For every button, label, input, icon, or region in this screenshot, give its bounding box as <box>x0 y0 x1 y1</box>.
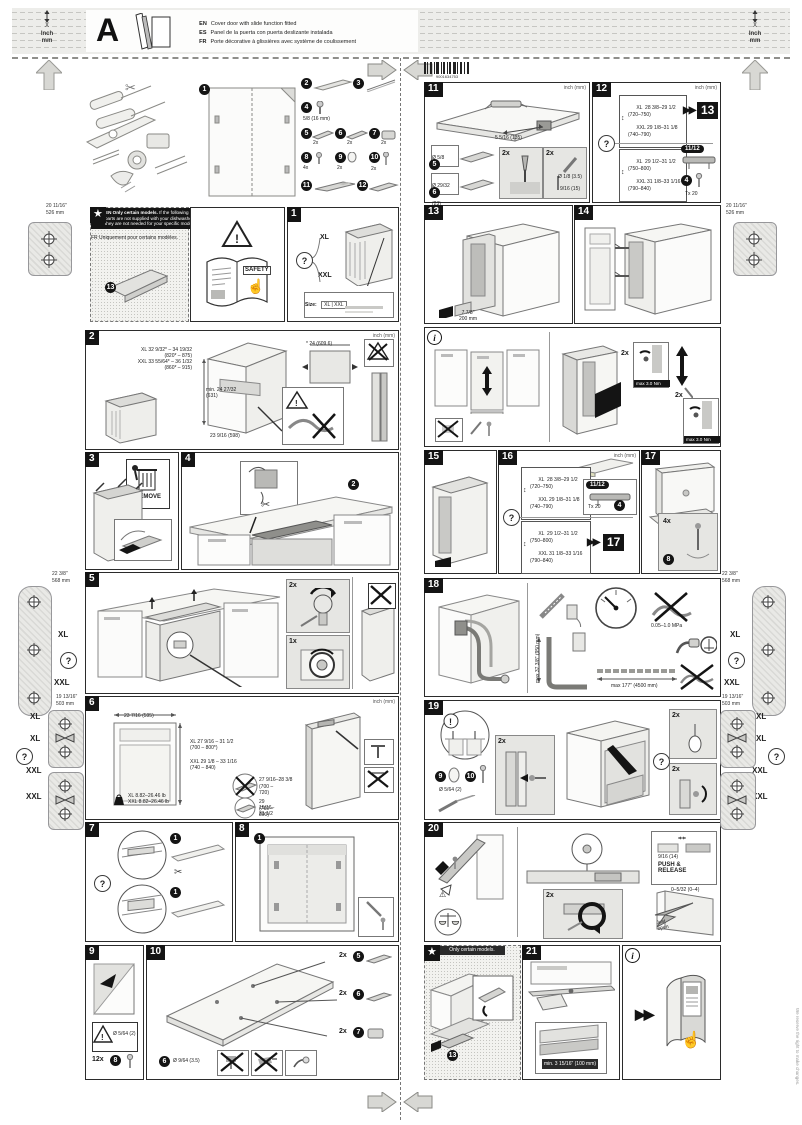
question-mark: ? <box>94 875 111 892</box>
unit-x: X <box>30 23 64 31</box>
part-number: 7 <box>369 128 380 139</box>
panel-15: 15 <box>424 450 497 574</box>
panel-number: 3 <box>85 452 99 467</box>
part-qty: 2x <box>337 165 342 171</box>
panel-17: 17 4x 8 <box>641 450 721 574</box>
crosshairs <box>18 586 50 714</box>
panel-9: 9 ! Ø 5/64 (2) 12x 8 <box>85 945 144 1080</box>
part-number: 7 <box>353 1027 364 1038</box>
slide-rail-icon <box>369 178 399 194</box>
vertical-arrow-icon <box>738 10 772 23</box>
sheet-letter: A <box>96 12 119 49</box>
depth-dim: 9/16 (15) <box>560 186 580 192</box>
torque-detail-b: max 3.0 Nm <box>683 398 719 444</box>
top-template-dim-right: 20 11/16"526 mm <box>726 203 747 216</box>
weight-icon <box>112 793 126 807</box>
width-note: * 24 (609.6) <box>306 341 332 347</box>
hinge-dim-right: 19 13/16"503 mm <box>722 694 743 707</box>
part-number: 8 <box>110 1055 121 1066</box>
divider <box>601 143 713 144</box>
no-kink-inset: ! <box>282 387 344 445</box>
qty-label: 4x <box>663 518 671 525</box>
next-doc-arrows: ▶▶ <box>635 1006 653 1023</box>
part-number: 4 <box>614 500 625 511</box>
fold-up-arrow-left <box>36 60 62 90</box>
star-icon: ★ <box>90 207 106 223</box>
not-allowed-2: 29 15/16–31 1/2 (760 – 800) <box>232 797 276 819</box>
pilot-drill-dim: Ø 5/64 (2) <box>439 787 462 793</box>
panel-star-note: ★ EN Only certain models. If the followi… <box>90 207 189 322</box>
height-option-b: XL 29 1/2–31 1/2(750–800) XXL 31 1/8–33 … <box>619 149 687 202</box>
option-dowel-inset: 2x <box>669 709 717 759</box>
part-number: 5 <box>429 159 440 170</box>
hinge-dim-left: 19 13/16"503 mm <box>56 694 77 707</box>
height-option-a: XL 28 3/8–29 1/2(720–750) XXL 29 1/8–31 … <box>521 467 591 520</box>
gap2-dim: 0–5/32 (0–4) <box>671 887 699 893</box>
question-mark: ? <box>16 748 33 765</box>
panel-number: 2 <box>85 330 99 345</box>
door-corner-sticker <box>635 885 717 939</box>
height-option-b: XL 29 1/2–31 1/2(750–800) XXL 31 1/8–33 … <box>521 521 591 574</box>
part-number: 6 <box>353 989 364 1000</box>
panel-number: 6 <box>85 696 99 711</box>
protective-strip-icon <box>313 78 353 92</box>
unit-x: X <box>738 23 772 31</box>
info-icon: i <box>625 948 640 963</box>
qty-label: 1x <box>289 638 297 645</box>
rail-part-label: 11/12 <box>681 145 704 153</box>
panel-11: 11 inch (mm) 5 5/16 (135) Ø 5/8 (16.5) 5… <box>424 82 590 203</box>
panel-1: 1 ? XL XXL Size: XL | XXL <box>287 207 399 322</box>
no-pressure-box: 0.05–1.0 MPa <box>647 589 699 625</box>
crosshairs <box>720 710 754 766</box>
part-number: 2 <box>301 78 312 89</box>
torque-label: max 3.0 Nm <box>684 436 720 443</box>
panel-number: 4 <box>181 452 195 467</box>
star-note-header: EN Only certain models. If the following… <box>91 208 198 229</box>
top-template-dim-left: 20 11/16"526 mm <box>46 203 67 216</box>
goto-step: 17 <box>603 534 624 551</box>
crosshairs <box>720 772 754 828</box>
part-number-template: 1 <box>199 84 210 95</box>
question-mark: ? <box>768 748 785 765</box>
qty-label: 12x <box>92 1056 104 1063</box>
hose-length-dim: max 177" (4500 mm) <box>611 683 658 689</box>
goto-step: 13 <box>697 102 718 119</box>
fold-template-on-door <box>90 960 138 1018</box>
screw-icon <box>314 101 326 115</box>
niche-depth-dim: min. 24 27/32 (631) <box>206 387 236 399</box>
door-height-xxl: XXL 29 1/8 – 33 1/16(740 – 840) <box>190 759 237 771</box>
crosshairs <box>48 772 82 828</box>
divider <box>352 577 353 689</box>
rating-plate: Size: XL | XXL <box>304 292 394 318</box>
unit-inch: Inch <box>749 31 761 37</box>
handle-distance-dim: 5 5/16 (135) <box>495 135 522 141</box>
part-number: 11 <box>301 180 312 191</box>
drill-note: Ø 9/64 (3.5) <box>173 1058 200 1064</box>
dowel-icon <box>447 767 461 783</box>
panel-number: 5 <box>85 572 99 587</box>
part-number: 13 <box>447 1050 458 1061</box>
plinth-min-dim: min. 3 15/16" (100 mm) <box>542 1059 598 1069</box>
worktop-strip-illustration <box>186 483 394 567</box>
rail-pair-icon <box>365 78 397 92</box>
torque-detail-a: max 3.0 Nm <box>633 342 669 388</box>
warning-triangle-icon: ! <box>221 220 253 248</box>
rail-dim-left: 22 3/8"568 mm <box>52 571 70 584</box>
pilot-drill-dim: Ø 5/64 (2) <box>113 1031 136 1037</box>
alignment-detail-circle: ! <box>435 709 497 761</box>
crosshairs <box>28 222 70 274</box>
unit-inch: Inch <box>41 31 53 37</box>
screw-detail-inset: 4x 8 <box>658 513 718 571</box>
qty-label: 2x <box>289 582 297 589</box>
units-note: inch (mm) <box>695 85 717 91</box>
long-screw-icon <box>381 152 391 166</box>
hang-door-illustration <box>581 214 715 320</box>
overview-region: ✂ 1 2 3 4 5/8 (16 mm) 5 2x 6 2x 7 2x 8 4… <box>85 76 397 206</box>
star-note-title: EN Only certain models. <box>105 210 158 215</box>
goto-arrows: ▶▶ <box>683 105 694 116</box>
door-align-front <box>433 342 543 414</box>
panel-info-adjust: i 2x max 3.0 Nm <box>424 327 721 447</box>
part-qty: 2x <box>347 140 352 146</box>
dishwasher-illustration <box>340 216 396 286</box>
vertical-arrow-icon <box>30 10 64 23</box>
svg-text:!: ! <box>235 232 239 246</box>
panel-number: 8 <box>235 822 249 837</box>
plinth-rail-mount <box>525 831 645 887</box>
screw-icon <box>693 173 705 189</box>
panel-8: 8 1 <box>235 822 399 942</box>
no-tilt-box <box>368 583 396 609</box>
handle-ok-box <box>364 739 394 765</box>
hinge-xl-label: XL <box>30 712 40 721</box>
panel-number: 16 <box>498 450 517 465</box>
question-mark: ? <box>296 252 313 269</box>
divider <box>549 332 550 442</box>
divider <box>505 517 633 518</box>
panel-safety: ! SAFETY ☝ <box>190 207 285 322</box>
template-part: 1 <box>170 887 181 898</box>
star-note-fr: FR Uniquement pour certains modèles. <box>91 235 178 241</box>
not-allowed-1: 27 9/16–28 3/8 (700 – 720) <box>232 773 276 799</box>
panel-19: 19 ! 9 10 Ø 5/64 (2) 2x <box>424 700 721 820</box>
panel-number: 9 <box>85 945 99 960</box>
niche-height-dims: XL 32 9/32* – 34 19/32(820* – 875) XXL 3… <box>122 347 192 371</box>
part-number: 10 <box>369 152 380 163</box>
svg-text:!: ! <box>295 399 298 408</box>
panel-2: 2 inch (mm) XL 32 9/32* – 34 19/32(820* … <box>85 330 399 450</box>
drain-standpipe-icon <box>533 631 593 691</box>
plinth-seal-illustration <box>429 960 515 1074</box>
panel-number: 10 <box>146 945 165 960</box>
panel-number: 18 <box>424 578 443 593</box>
plinth-clip-illustration <box>527 958 615 1018</box>
parts-list: 2 3 4 5/8 (16 mm) 5 2x 6 2x 7 2x 8 4x 9 … <box>301 76 397 206</box>
units-marker-right: X Inch mm <box>738 10 772 46</box>
part-number: 10 <box>465 771 476 782</box>
drain-height-dim: max 37 3/8" (950 mm) <box>535 634 541 683</box>
star2-title: Only certain models. <box>439 946 505 955</box>
part-number: 5 <box>353 951 364 962</box>
front-feet-inset: 2x <box>286 579 350 633</box>
height-option-a: XL 28 3/8–29 1/2(720–750) XXL 29 1/8–31 … <box>619 95 687 148</box>
no-tool-box <box>435 418 463 442</box>
header-text: Porte décorative à glissières avec systè… <box>211 39 357 45</box>
svg-text:✂: ✂ <box>174 867 182 878</box>
fold-up-arrow-right <box>742 60 768 90</box>
part-number: 5 <box>301 128 312 139</box>
plinth-height-inset: min. 3 15/16" (100 mm) <box>535 1022 607 1074</box>
pull-strip-inset <box>114 519 172 561</box>
no-drill-box <box>251 1050 283 1076</box>
panel-info-next: i ▶▶ ☝ <box>622 945 721 1080</box>
goto-arrows: ▶▶ <box>587 537 598 548</box>
svg-text:⚠: ⚠ <box>439 890 446 899</box>
slide-in-illustration <box>94 581 284 687</box>
qty-label: 2x <box>672 712 680 719</box>
size-value: XL | XXL <box>321 301 346 309</box>
gap-dim: 9/16 (14) <box>658 854 678 860</box>
torx-label: Tx 20 <box>588 504 601 510</box>
lock-detail-inset: 2x <box>543 889 623 939</box>
hinge-xl-label: XL <box>756 734 766 743</box>
panel-16: 16 inch (mm) ? XL 28 3/8–29 1/2(720–750)… <box>498 450 640 574</box>
qty-label: 2x <box>546 892 554 899</box>
units-note: inch (mm) <box>564 85 586 91</box>
panel-number: 11 <box>424 82 443 97</box>
question-mark: ? <box>60 652 77 669</box>
part-number: 9 <box>335 152 346 163</box>
torque-label: max 3.0 Nm <box>634 380 670 387</box>
long-screw-icon <box>477 765 489 785</box>
part-number: 12 <box>357 180 368 191</box>
part-number: 8 <box>301 152 312 163</box>
torx-label: Tx 20 <box>685 191 698 197</box>
push-release-inset: 9/16 (14) PUSH & RELEASE <box>651 831 717 885</box>
side-fix-inset: 2x <box>495 735 555 815</box>
panel-7: 7 ? ✂ 1 1 <box>85 822 233 942</box>
qty-label: 2x <box>675 392 683 399</box>
push-in-illustration <box>429 461 491 567</box>
panel-number: 19 <box>424 700 443 715</box>
pressure-gauge-icon <box>593 585 639 631</box>
no-hammer-box <box>217 1050 249 1076</box>
drill-warning-inset: ! Ø 5/64 (2) <box>92 1022 138 1052</box>
divider <box>527 583 528 693</box>
svg-text:✂: ✂ <box>125 80 136 95</box>
part-number: 4 <box>301 102 312 113</box>
template-part: 1 <box>170 833 181 844</box>
safety-label: SAFETY <box>243 266 271 275</box>
hose-length-icon <box>593 663 683 683</box>
panel-20: 20 ⚠ 2x <box>424 822 721 942</box>
fold-dash-separator <box>12 57 790 59</box>
change-note: We reserve the right to make changes. <box>795 1008 800 1085</box>
earthed-plug-icon <box>671 631 717 661</box>
panel-number: 20 <box>424 822 443 837</box>
panel-18: 18 0.05– <box>424 578 721 697</box>
star-icon: ★ <box>424 945 440 961</box>
sticker-text: Just open <box>656 918 669 932</box>
template-in-niche <box>252 831 362 935</box>
panel-number: 15 <box>424 450 443 465</box>
hinge-xl-label: XL <box>30 734 40 743</box>
door-back-handle <box>296 705 366 813</box>
part-number: 4 <box>681 175 692 186</box>
header: A ENCover door with slide function fitte… <box>86 10 418 52</box>
barcode-bars <box>424 62 470 74</box>
panel-number: 12 <box>592 82 611 97</box>
panel-number: 14 <box>574 205 593 220</box>
pressure-range: 0.05–1.0 MPa <box>651 623 682 629</box>
option-screw-inset: 2x <box>669 763 717 815</box>
question-mark: ? <box>728 652 745 669</box>
part-qty: 2x <box>381 140 386 146</box>
screw-inset <box>358 897 394 937</box>
spacer-rail-inset: 11/12 4 Tx 20 <box>583 479 637 515</box>
hinge-xxl-label: XXL <box>26 766 42 775</box>
svg-text:!: ! <box>101 1033 104 1042</box>
panel-number: 13 <box>424 205 443 220</box>
panel-number: 17 <box>641 450 660 465</box>
door-iso-adjust <box>555 338 625 440</box>
panel-number: 7 <box>85 822 99 837</box>
units-marker-left: X Inch mm <box>30 10 64 46</box>
panel-star-plinth: ★ Only certain models. 13 <box>424 945 521 1080</box>
cabinet-iso <box>557 711 653 813</box>
screw-icon <box>124 1054 136 1070</box>
panel-14: 14 <box>574 205 721 324</box>
part-number: 9 <box>435 771 446 782</box>
panel-13: 13 7 7/8"200 mm <box>424 205 573 324</box>
door-weight: XL 8.82–26.46 lbXXL 8.82–26.46 lb <box>128 793 169 805</box>
rail-part-label: 11/12 <box>586 481 609 489</box>
slide-rail-icon <box>313 178 357 194</box>
part-number: 6 <box>429 187 440 198</box>
panel-4: 4 ✂ 2 <box>181 452 399 570</box>
pull-carrier-illustration <box>437 214 563 318</box>
divider <box>517 827 518 937</box>
door-flat-with-parts <box>157 956 337 1052</box>
screwdriver-icon <box>435 795 485 815</box>
template-part: 1 <box>254 833 265 844</box>
niche-floor-dim: 23 9/16 (598) <box>210 433 240 439</box>
part-qty: 4x <box>303 165 308 171</box>
part-number: 8 <box>663 554 674 565</box>
part-number: 13 <box>105 282 116 293</box>
balance-scale-icon <box>433 907 463 937</box>
door-width-dim: 23 7/16 (595) <box>124 713 154 719</box>
push-release-label: PUSH & RELEASE <box>658 862 686 874</box>
info-icon: i <box>427 330 442 345</box>
plate-lines <box>345 306 385 314</box>
pointing-hand-icon: ☝ <box>247 278 264 295</box>
rail-xxl-label-right: XXL <box>724 678 740 687</box>
panel-5: 5 2x 1x <box>85 572 399 694</box>
panel-12: 12 inch (mm) ? XL 28 3/8–29 1/2(720–750)… <box>592 82 721 203</box>
plinth-rail-diagonal: ⚠ <box>433 833 511 903</box>
hinge-xl-label: XL <box>756 712 766 721</box>
part-number: 6 <box>335 128 346 139</box>
panel-10: 10 2x 5 2x 6 2x 7 6 Ø 9/64 (3.5) <box>146 945 399 1080</box>
crosshairs <box>733 222 775 274</box>
teflon-tape-icon <box>533 587 593 627</box>
rail-dim-right: 22 3/8"568 mm <box>722 571 740 584</box>
dishwasher-iso <box>98 383 168 445</box>
part-number: 2 <box>348 479 359 490</box>
header-line-fr: FRPorte décorative à glissières avec sys… <box>190 34 356 51</box>
drill-inset: 2x <box>499 147 543 199</box>
question-mark: ? <box>503 509 520 526</box>
barcode: 9001634753 <box>424 62 470 79</box>
cap-icon <box>347 152 357 165</box>
barcode-number: 9001634753 <box>424 74 470 79</box>
panel-number: 21 <box>522 945 541 960</box>
units-note: inch (mm) <box>373 699 395 705</box>
hinge-xxl-label: XXL <box>26 792 42 801</box>
crosshairs <box>48 710 82 766</box>
fold-mark-bottom <box>366 1092 434 1112</box>
question-mark: ? <box>598 135 615 152</box>
panel-3: 3 REMOVE <box>85 452 179 570</box>
manual-page: X Inch mm X Inch mm A ENCover door with … <box>0 0 802 1125</box>
no-extension-icon <box>677 663 717 691</box>
qty-label: 2x <box>672 766 680 773</box>
handle-no-box <box>364 767 394 793</box>
hoses-illustration <box>431 587 523 691</box>
no-kink-illustration: ! <box>283 388 341 442</box>
pointing-hand-icon: ☝ <box>681 1030 701 1050</box>
rail-xxl-label-left: XXL <box>54 678 70 687</box>
no-tilt-inset <box>364 339 394 367</box>
part-note: 5/8 (16 mm) <box>303 116 343 122</box>
brace-lines <box>310 230 330 290</box>
crosshairs <box>752 586 784 714</box>
hand-press-ok-box <box>285 1050 317 1076</box>
question-mark: ? <box>653 753 670 770</box>
part-qty: 2x <box>313 140 318 146</box>
part-number: 3 <box>353 78 364 89</box>
panel-6: 6 inch (mm) 23 7/16 (595) XL 27 9/16 – 3… <box>85 696 399 820</box>
panel-number: 1 <box>287 207 301 222</box>
size-label: Size: <box>305 302 317 308</box>
lang-code: FR <box>199 39 206 45</box>
note-part: 6 <box>159 1056 170 1067</box>
unit-mm: mm <box>750 38 761 44</box>
part-qty: 2x <box>371 166 376 172</box>
drill-dim: Ø 1/8 (3.5) <box>558 174 582 180</box>
door-height-xl: XL 27 9/16 – 31 1/2(700 – 800*) <box>190 739 233 751</box>
rear-foot-inset: 1x <box>286 635 350 689</box>
screwdriver-inset: 2x Ø 1/8 (3.5) 9/16 (15) <box>543 147 587 199</box>
panel-21: 21 min. 3 15/16" (100 mm) <box>522 945 620 1080</box>
qty-label: 2x <box>498 738 506 745</box>
center-fold-line <box>400 58 401 1120</box>
door-edge-detail <box>368 371 394 443</box>
screw-icon <box>314 152 324 165</box>
rail-xl-label-left: XL <box>58 630 68 639</box>
unit-mm: mm <box>42 38 53 44</box>
qty-label: 2x <box>621 350 629 357</box>
sliding-door-icon <box>132 13 176 51</box>
rail-xl-label-right: XL <box>730 630 740 639</box>
pullout-dim: 7 7/8"200 mm <box>459 310 477 322</box>
screws-icons <box>465 416 505 440</box>
svg-text:!: ! <box>449 717 452 727</box>
